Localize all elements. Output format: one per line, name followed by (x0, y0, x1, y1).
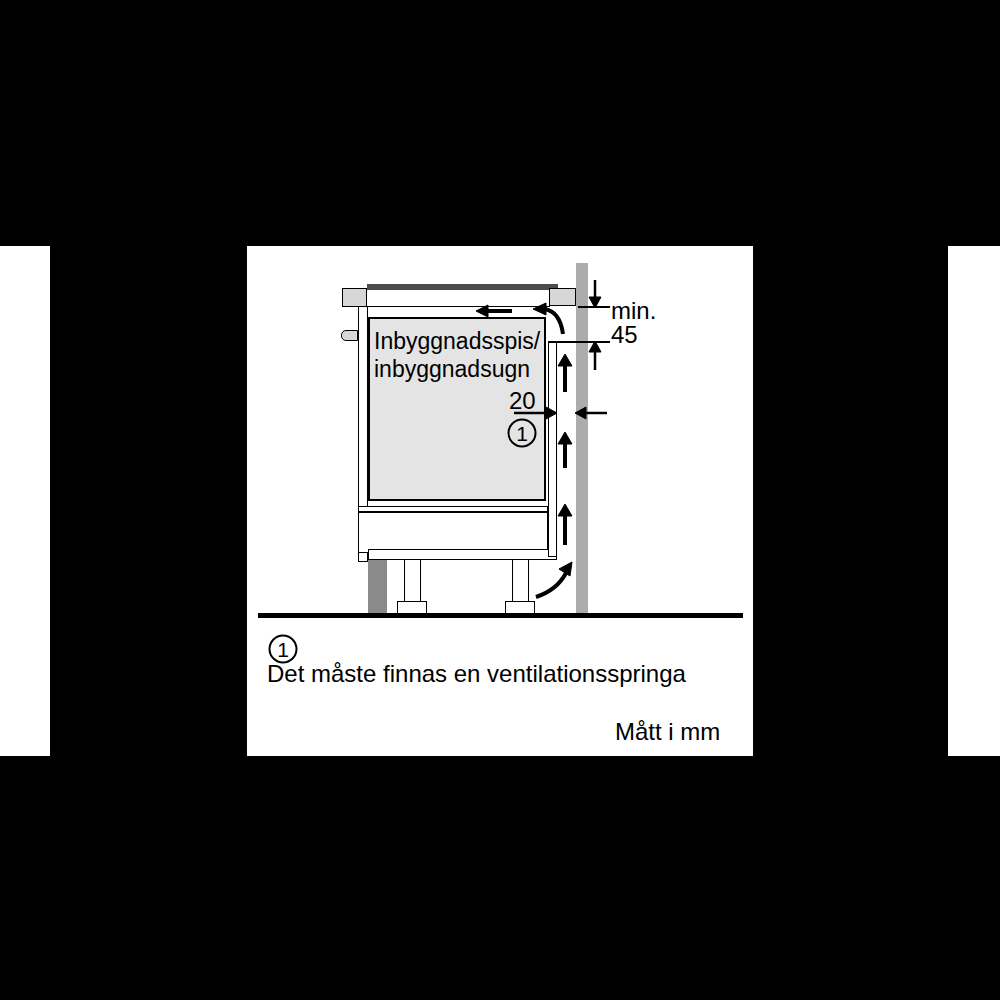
drawer-box (358, 506, 548, 553)
floor-line (258, 613, 743, 618)
cabinet-bottom-panel (368, 549, 557, 560)
footnote-number: 1 (277, 638, 289, 661)
rear-leg-shaft (512, 558, 529, 603)
worktop (360, 289, 550, 307)
front-leg-shaft (404, 558, 421, 603)
dim-arrow-down-head (589, 297, 601, 308)
dim-arrow-up-head (589, 341, 601, 352)
drawer-inner-line (358, 511, 548, 513)
screenshot-root: Inbyggnadsspis/ inbyggnadsugn (0, 0, 1000, 1000)
footnote-text: Det måste finnas en ventilationsspringa (267, 661, 686, 687)
airflow-up-arrow-3-head (558, 504, 572, 516)
cabinet-rear-panel (548, 342, 557, 557)
oven-label-line1: Inbyggnadsspis/ (374, 327, 540, 355)
hob-front-edge (342, 288, 367, 307)
airflow-up-arrow-1-head (558, 354, 572, 366)
units-label: Mått i mm (615, 719, 720, 745)
airflow-curved-arrow-bottom (536, 573, 566, 597)
footnote-circle (270, 636, 297, 663)
control-knob (341, 330, 358, 341)
dim-gap-value: 20 (509, 388, 536, 414)
wall-section (576, 263, 588, 614)
airflow-curved-arrow-bottom-head (559, 562, 572, 576)
oven-label: Inbyggnadsspis/ inbyggnadsugn (374, 327, 540, 383)
dim-min-value: 45 (611, 322, 638, 348)
airflow-up-arrow-2-head (558, 432, 572, 444)
oven-label-line2: inbyggnadsugn (374, 355, 540, 383)
worktop-wall-batten (549, 288, 576, 306)
hob-surface (367, 284, 558, 290)
installation-diagram: Inbyggnadsspis/ inbyggnadsugn (0, 0, 1000, 1000)
toe-kick-panel (368, 560, 387, 613)
airflow-curved-arrow-top (545, 309, 563, 334)
